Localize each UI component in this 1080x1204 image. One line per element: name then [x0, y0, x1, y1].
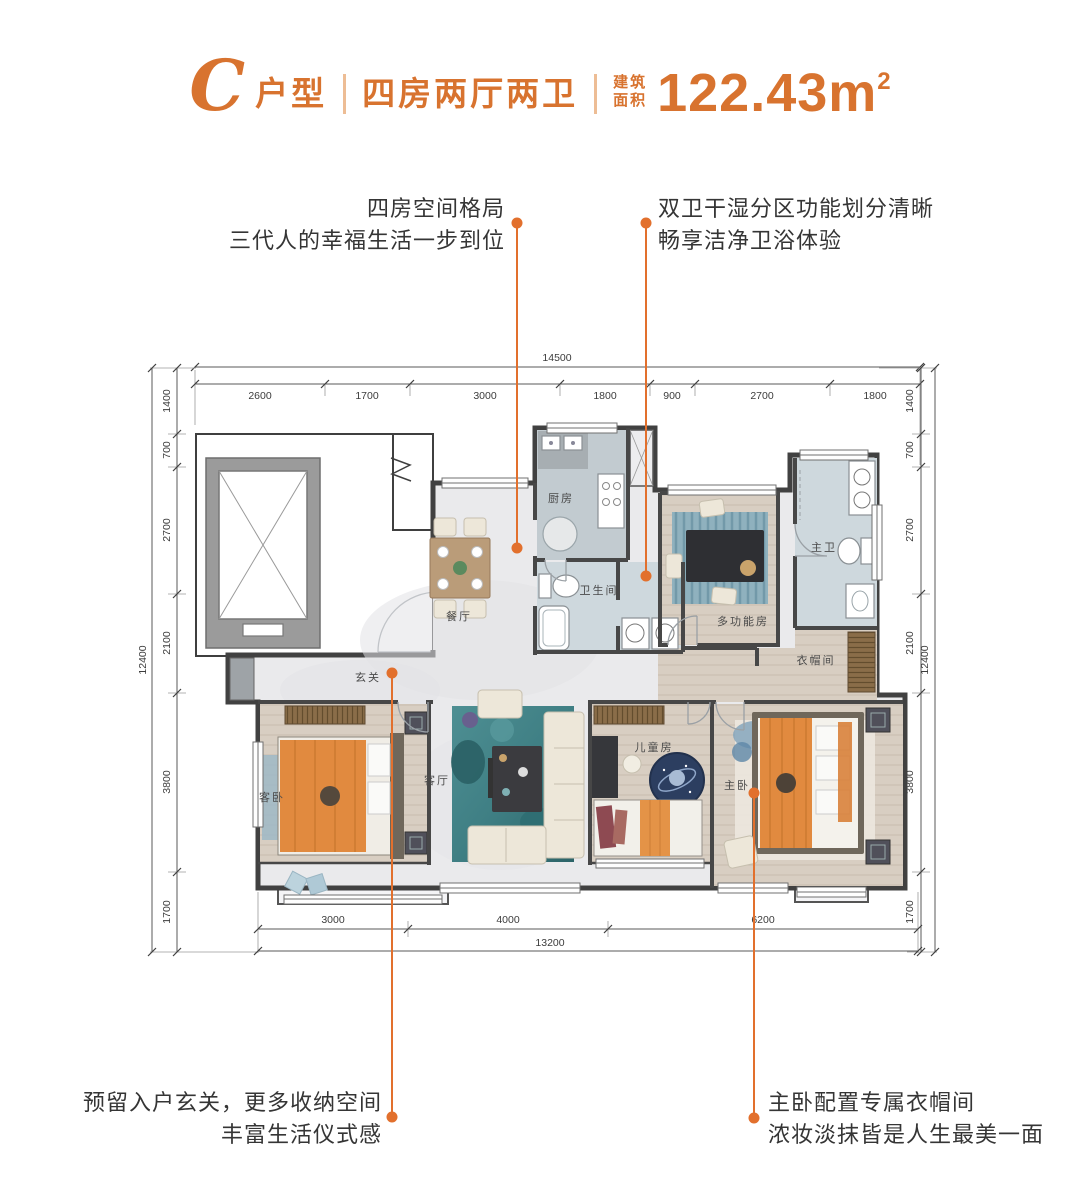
svg-text:700: 700 [904, 441, 916, 459]
nightstand [866, 708, 890, 732]
floorplan-svg: 14500 2600 1700 3000 1800 900 2700 1800 … [0, 0, 1080, 1204]
svg-text:3000: 3000 [321, 914, 345, 926]
nightstand [866, 840, 890, 864]
cloakroom-wardrobe [848, 632, 875, 692]
label-master-bedroom: 主卧 [724, 779, 750, 792]
svg-text:13200: 13200 [535, 937, 564, 949]
shoe-cabinet [230, 658, 254, 700]
label-dining: 餐厅 [446, 609, 472, 623]
svg-text:14500: 14500 [542, 352, 571, 364]
sofa [544, 712, 584, 858]
svg-text:700: 700 [161, 441, 173, 459]
guest-wardrobe [285, 706, 365, 724]
corridor-floor [658, 648, 877, 702]
svg-text:1700: 1700 [904, 900, 916, 924]
floorplan-page: C 户型 四房两厅两卫 建筑 面积 122.43m 2 四房空间格局 三代人的幸… [0, 0, 1080, 1204]
svg-text:1700: 1700 [161, 900, 173, 924]
svg-text:1800: 1800 [863, 390, 887, 402]
kids-wardrobe [594, 706, 664, 724]
label-master-bath: 主卫 [811, 541, 837, 554]
svg-text:3000: 3000 [473, 390, 497, 402]
label-foyer: 玄关 [355, 670, 381, 684]
svg-text:2100: 2100 [904, 631, 916, 655]
svg-text:1800: 1800 [593, 390, 617, 402]
label-guest-bedroom: 客卧 [259, 790, 285, 804]
living-room-furniture [451, 690, 584, 864]
svg-text:12400: 12400 [137, 645, 149, 674]
nightstand [405, 712, 427, 734]
label-bathroom: 卫生间 [580, 583, 619, 597]
svg-text:2700: 2700 [904, 518, 916, 542]
svg-text:2700: 2700 [161, 518, 173, 542]
nightstand [405, 832, 427, 854]
armchair [478, 690, 522, 718]
coffee-table [492, 746, 542, 812]
stairwell [393, 434, 433, 530]
elevator [206, 458, 320, 648]
label-cloakroom: 衣帽间 [797, 653, 836, 667]
svg-text:900: 900 [663, 390, 681, 402]
vanity [846, 584, 874, 618]
label-kids-room: 儿童房 [635, 740, 674, 754]
label-living-room: 客厅 [424, 773, 450, 787]
kids-desk [592, 736, 618, 798]
table-plant [453, 561, 467, 575]
loveseat [468, 826, 546, 864]
svg-text:1400: 1400 [161, 389, 173, 413]
svg-text:4000: 4000 [496, 914, 520, 926]
svg-text:2700: 2700 [750, 390, 774, 402]
svg-text:2100: 2100 [161, 631, 173, 655]
svg-text:3800: 3800 [161, 770, 173, 794]
label-kitchen: 厨房 [548, 492, 574, 505]
tv [488, 758, 493, 798]
svg-text:2600: 2600 [248, 390, 272, 402]
water-heater [543, 517, 577, 551]
svg-text:1700: 1700 [355, 390, 379, 402]
svg-text:1400: 1400 [904, 389, 916, 413]
label-multi-room: 多功能房 [717, 614, 769, 628]
svg-text:12400: 12400 [919, 645, 931, 674]
master-toilet [838, 538, 860, 564]
kids-bed-blanket [640, 800, 670, 856]
